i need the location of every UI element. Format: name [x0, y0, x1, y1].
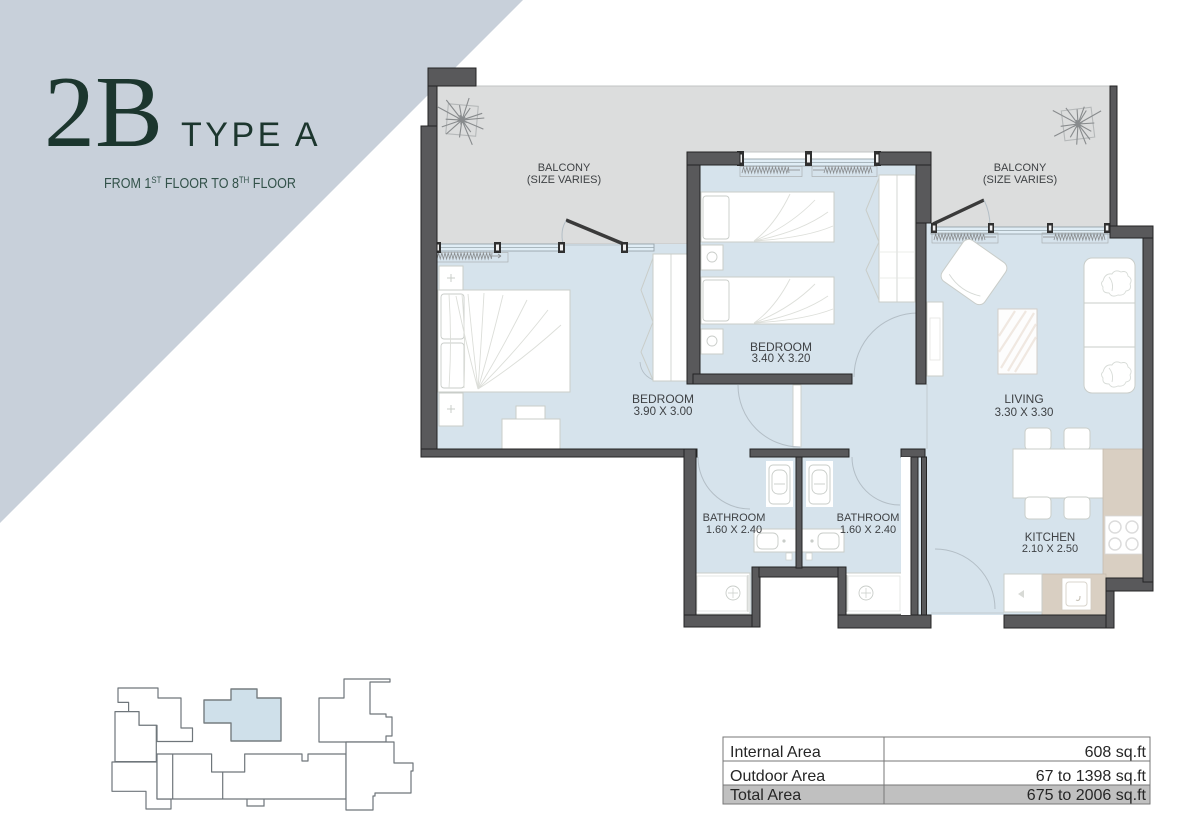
svg-text:BATHROOM: BATHROOM: [703, 512, 766, 524]
svg-text:TYPE A: TYPE A: [181, 116, 321, 154]
svg-text:(SIZE VARIES): (SIZE VARIES): [983, 174, 1057, 186]
svg-text:1.60 X 2.40: 1.60 X 2.40: [706, 524, 762, 536]
svg-text:1.60 X 2.40: 1.60 X 2.40: [840, 524, 896, 536]
svg-text:67 to 1398 sq.ft: 67 to 1398 sq.ft: [1036, 768, 1147, 785]
svg-text:BALCONY: BALCONY: [994, 162, 1047, 174]
svg-text:BATHROOM: BATHROOM: [837, 512, 900, 524]
svg-text:FROM 1ST FLOOR TO 8TH FLOOR: FROM 1ST FLOOR TO 8TH FLOOR: [104, 175, 296, 192]
svg-text:3.30 X 3.30: 3.30 X 3.30: [995, 407, 1054, 419]
svg-text:BALCONY: BALCONY: [538, 162, 591, 174]
svg-text:Internal Area: Internal Area: [730, 744, 821, 761]
svg-text:LIVING: LIVING: [1004, 392, 1043, 406]
svg-text:BEDROOM: BEDROOM: [750, 340, 812, 354]
svg-text:Total Area: Total Area: [730, 787, 801, 804]
svg-text:608 sq.ft: 608 sq.ft: [1085, 744, 1147, 761]
svg-text:(SIZE VARIES): (SIZE VARIES): [527, 174, 601, 186]
svg-text:Outdoor Area: Outdoor Area: [730, 768, 825, 785]
svg-text:675 to 2006 sq.ft: 675 to 2006 sq.ft: [1027, 787, 1147, 804]
svg-text:2B: 2B: [44, 56, 163, 169]
svg-text:2.10 X 2.50: 2.10 X 2.50: [1022, 543, 1078, 555]
svg-text:BEDROOM: BEDROOM: [632, 392, 694, 406]
svg-text:3.40 X 3.20: 3.40 X 3.20: [752, 353, 811, 365]
svg-text:3.90 X 3.00: 3.90 X 3.00: [634, 406, 693, 418]
